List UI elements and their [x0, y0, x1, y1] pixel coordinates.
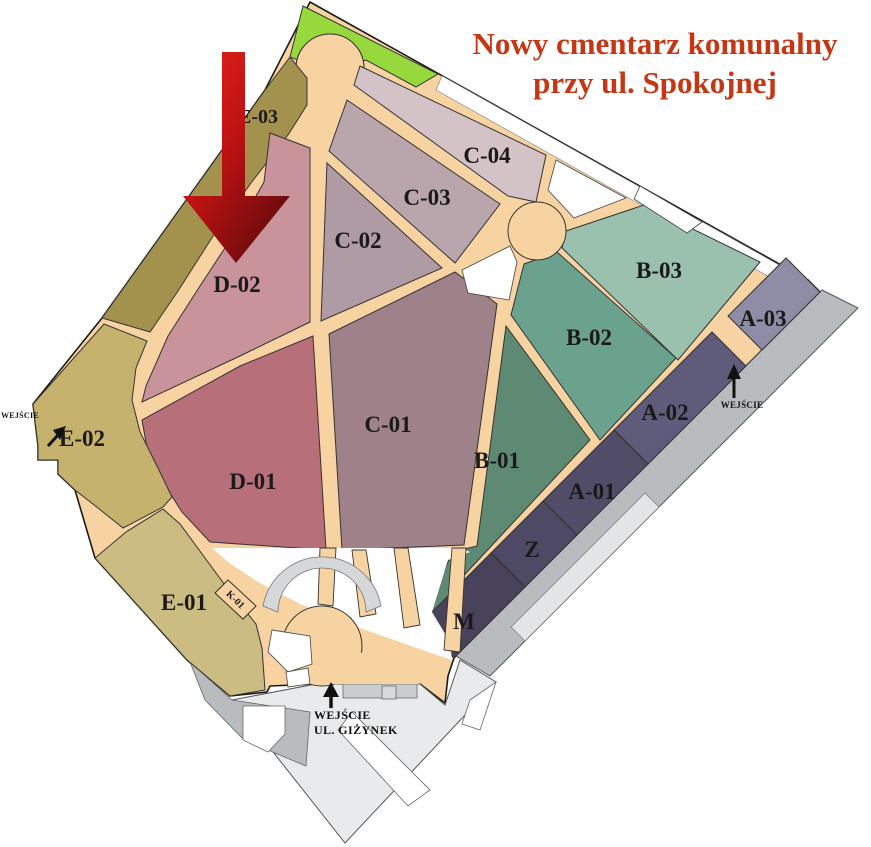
label-e02: E-02 — [59, 426, 105, 451]
entrance-left-label: WEJŚCIE — [1, 410, 39, 420]
label-c01: C-01 — [364, 412, 411, 437]
entrance-bottom-label-line1: WEJŚCIE — [314, 708, 371, 722]
label-a01: A-01 — [568, 479, 615, 504]
label-b03: B-03 — [636, 258, 682, 283]
gate-kiosk — [382, 686, 396, 699]
entrance-right-label: WEJŚCIE — [721, 400, 764, 410]
cemetery-map-page: E-03 C-04 C-03 C-02 D-02 B-03 A-03 B-02 … — [0, 0, 871, 847]
map-title-line2: przy ul. Spokojnej — [533, 65, 777, 100]
label-z: Z — [524, 537, 539, 562]
label-c03: C-03 — [403, 185, 450, 210]
cemetery-map: E-03 C-04 C-03 C-02 D-02 B-03 A-03 B-02 … — [0, 0, 871, 847]
label-e01: E-01 — [161, 590, 207, 615]
map-title-line1: Nowy cmentarz komunalny — [472, 26, 838, 61]
central-roundabout — [508, 202, 566, 260]
label-b01: B-01 — [474, 448, 520, 473]
entrance-bottom-label-line2: UL. GIŻYNEK — [314, 723, 398, 737]
label-d02: D-02 — [213, 272, 260, 297]
label-c02: C-02 — [334, 228, 381, 253]
label-a03: A-03 — [739, 306, 786, 331]
label-b02: B-02 — [566, 325, 612, 350]
label-m: M — [453, 609, 475, 634]
label-d01: D-01 — [229, 469, 276, 494]
gate-building-strip — [343, 684, 417, 698]
label-c04: C-04 — [463, 143, 511, 168]
label-a02: A-02 — [641, 400, 688, 425]
